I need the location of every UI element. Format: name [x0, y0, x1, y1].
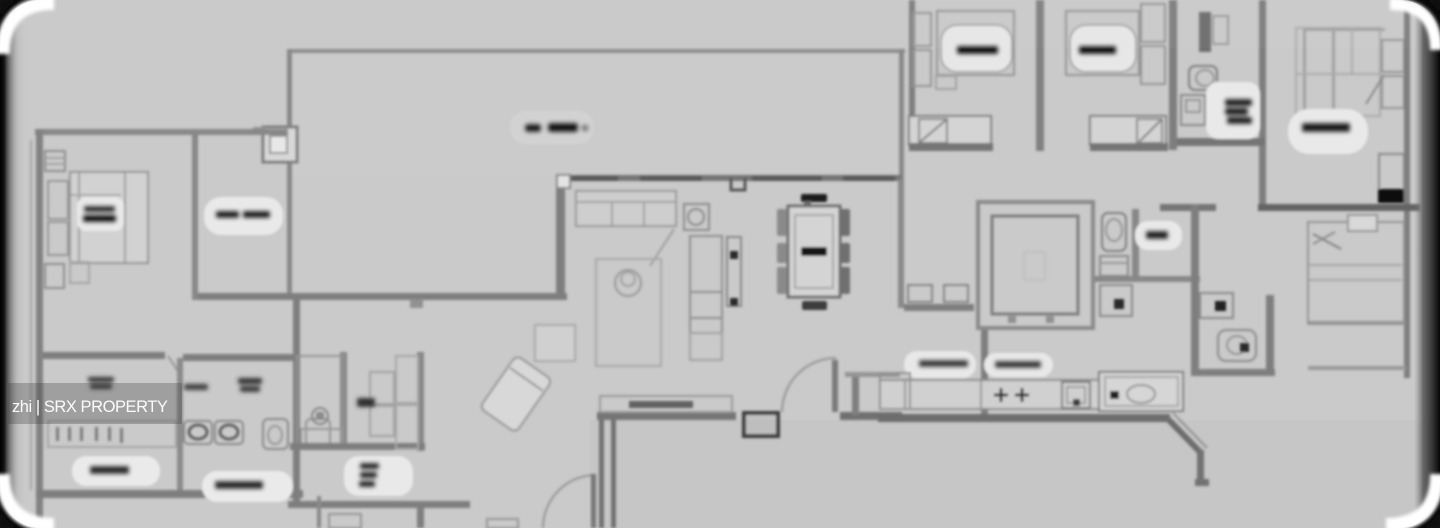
svg-text:zhi | SRX PROPERTY: zhi | SRX PROPERTY	[12, 398, 168, 416]
